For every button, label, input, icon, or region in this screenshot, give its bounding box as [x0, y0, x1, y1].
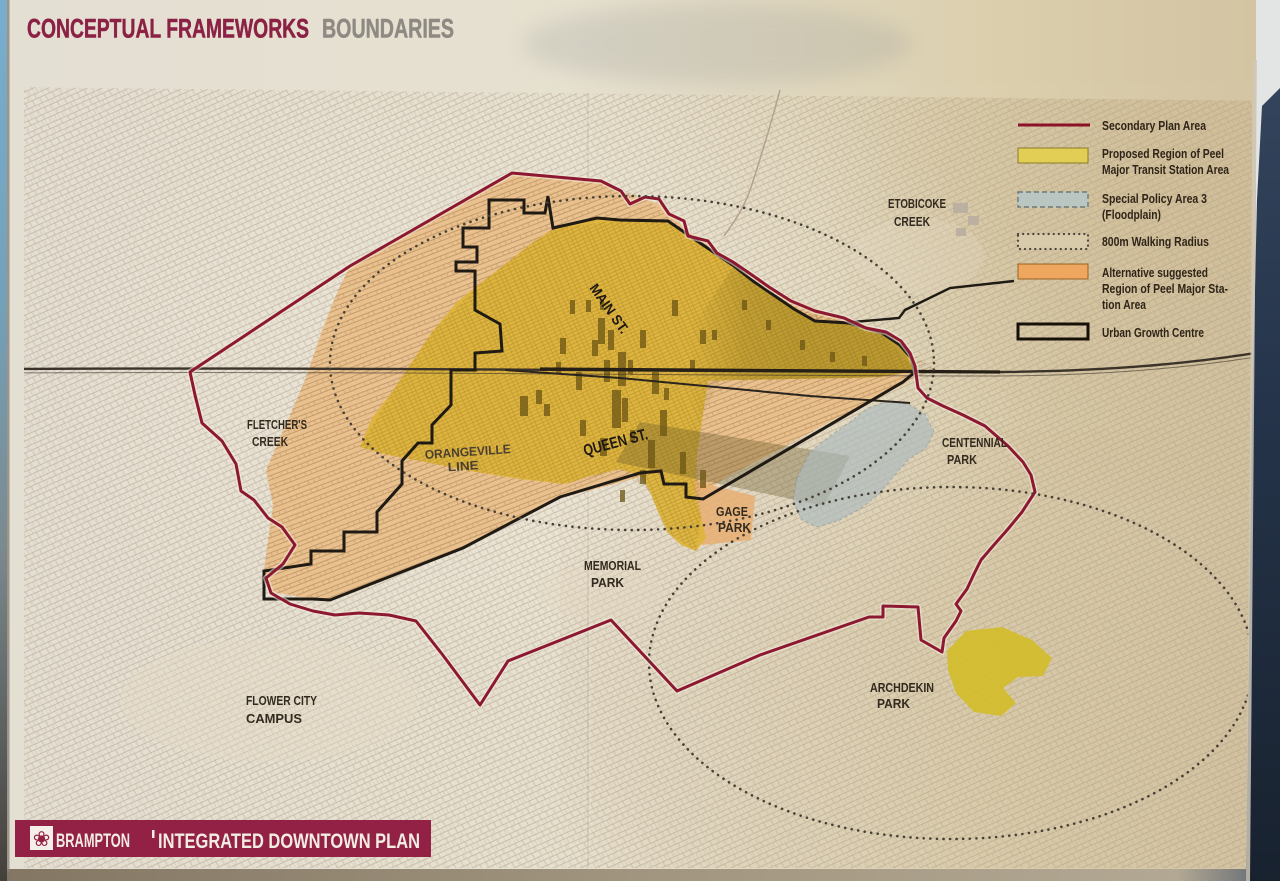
svg-text:CREEK: CREEK	[894, 214, 930, 229]
svg-text:Urban Growth Centre: Urban Growth Centre	[1102, 325, 1204, 340]
svg-text:CONCEPTUAL FRAMEWORKS: CONCEPTUAL FRAMEWORKS	[27, 14, 309, 44]
svg-text:Special Policy Area 3: Special Policy Area 3	[1102, 191, 1207, 206]
svg-text:BRAMPTON: BRAMPTON	[56, 830, 130, 852]
svg-text:ETOBICOKE: ETOBICOKE	[888, 196, 946, 211]
svg-text:PARK: PARK	[877, 697, 910, 711]
svg-text:Major Transit Station Area: Major Transit Station Area	[1102, 162, 1230, 177]
svg-text:BOUNDARIES: BOUNDARIES	[322, 14, 454, 44]
svg-text:FLOWER CITY: FLOWER CITY	[246, 693, 317, 708]
svg-text:CAMPUS: CAMPUS	[246, 711, 302, 726]
svg-text:Region of Peel Major Sta-: Region of Peel Major Sta-	[1102, 281, 1228, 296]
svg-text:PARK: PARK	[718, 521, 751, 535]
svg-text:CENTENNIAL: CENTENNIAL	[942, 436, 1007, 450]
svg-text:Proposed Region of Peel: Proposed Region of Peel	[1102, 146, 1224, 161]
svg-text:PARK: PARK	[947, 453, 977, 467]
svg-text:LINE: LINE	[447, 458, 479, 474]
svg-text:Secondary Plan Area: Secondary Plan Area	[1102, 118, 1207, 133]
svg-text:800m Walking Radius: 800m Walking Radius	[1102, 234, 1209, 249]
svg-text:GAGE: GAGE	[716, 505, 748, 519]
svg-text:ARCHDEKIN: ARCHDEKIN	[870, 681, 934, 695]
svg-text:MEMORIAL: MEMORIAL	[584, 559, 641, 573]
svg-text:tion Area: tion Area	[1102, 297, 1147, 312]
svg-text:❀: ❀	[33, 828, 51, 851]
svg-text:PARK: PARK	[591, 576, 624, 590]
svg-text:(Floodplain): (Floodplain)	[1102, 207, 1161, 222]
svg-text:Alternative suggested: Alternative suggested	[1102, 265, 1208, 280]
svg-text:CREEK: CREEK	[252, 435, 288, 449]
svg-text:FLETCHER'S: FLETCHER'S	[247, 418, 307, 432]
svg-text:INTEGRATED DOWNTOWN PLAN: INTEGRATED DOWNTOWN PLAN	[158, 830, 420, 853]
